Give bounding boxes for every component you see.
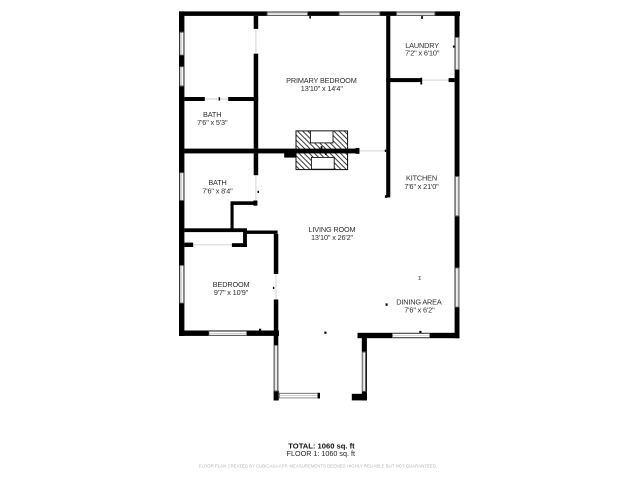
svg-text:9'7" x 10'9": 9'7" x 10'9": [214, 288, 249, 297]
svg-text:7'6" x 6'2": 7'6" x 6'2": [404, 306, 435, 315]
svg-text:7'6" x 5'3": 7'6" x 5'3": [197, 118, 228, 127]
svg-text:FLOOR PLAN CREATED BY CUBICASA: FLOOR PLAN CREATED BY CUBICASA APP. MEAS…: [199, 464, 437, 469]
svg-text:FLOOR 1: 1060 sq. ft: FLOOR 1: 1060 sq. ft: [287, 449, 355, 458]
svg-text:13'10" x 14'4": 13'10" x 14'4": [301, 84, 344, 93]
svg-text:13'10" x 26'2": 13'10" x 26'2": [311, 233, 354, 242]
svg-text:7'2" x 6'10": 7'2" x 6'10": [405, 49, 440, 58]
svg-text:7'6" x 8'4": 7'6" x 8'4": [202, 187, 233, 196]
svg-text:7'6" x 21'0": 7'6" x 21'0": [404, 182, 439, 191]
